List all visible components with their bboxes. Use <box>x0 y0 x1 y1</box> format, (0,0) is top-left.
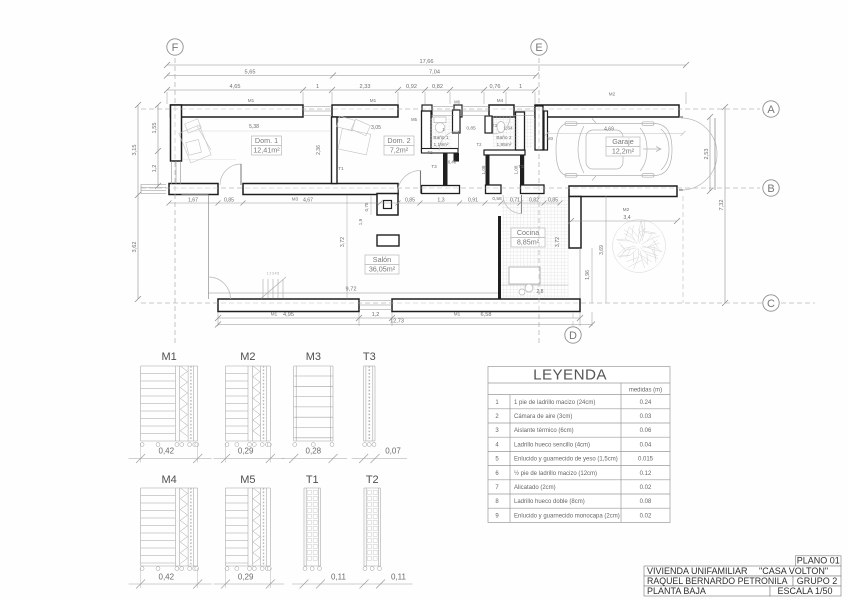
svg-text:36,05m²: 36,05m² <box>369 265 396 274</box>
svg-text:0,42: 0,42 <box>159 446 175 455</box>
svg-text:T3: T3 <box>363 351 376 363</box>
svg-text:T3: T3 <box>431 164 437 169</box>
svg-text:0.08: 0.08 <box>640 499 652 505</box>
svg-text:12,2m²: 12,2m² <box>612 147 635 156</box>
svg-text:3,72: 3,72 <box>340 237 346 247</box>
svg-text:M2: M2 <box>623 207 630 212</box>
svg-text:0.02: 0.02 <box>640 485 652 491</box>
svg-text:Enlucido y guarnecido monocapa: Enlucido y guarnecido monocapa (2cm) <box>514 513 620 519</box>
svg-text:0.06: 0.06 <box>640 428 652 434</box>
svg-text:7,32: 7,32 <box>719 200 725 211</box>
svg-text:M6: M6 <box>454 100 460 105</box>
svg-text:12,41m²: 12,41m² <box>253 146 280 155</box>
svg-text:M3: M3 <box>306 351 321 363</box>
svg-text:4,65: 4,65 <box>230 84 241 90</box>
svg-text:2,33: 2,33 <box>360 84 371 90</box>
svg-text:LEYENDA: LEYENDA <box>533 367 607 384</box>
svg-text:M4: M4 <box>497 98 504 103</box>
svg-text:M4: M4 <box>162 474 177 486</box>
svg-text:7,2m²: 7,2m² <box>390 146 409 155</box>
svg-text:8,85m²: 8,85m² <box>517 238 540 247</box>
svg-text:3,69: 3,69 <box>599 245 605 255</box>
svg-text:0,29: 0,29 <box>238 572 254 581</box>
svg-text:M3: M3 <box>292 197 299 202</box>
svg-text:T1: T1 <box>306 474 319 486</box>
svg-text:M5: M5 <box>240 474 255 486</box>
svg-text:Baño 1: Baño 1 <box>433 135 449 141</box>
svg-text:2,8: 2,8 <box>537 289 544 295</box>
svg-text:2,53: 2,53 <box>704 149 710 160</box>
svg-text:M5: M5 <box>411 117 417 122</box>
svg-text:0,28: 0,28 <box>306 446 322 455</box>
svg-text:2,36: 2,36 <box>316 145 322 155</box>
svg-text:Salón: Salón <box>373 255 391 264</box>
svg-text:C: C <box>767 298 775 310</box>
svg-text:1,95m²: 1,95m² <box>497 142 512 148</box>
svg-text:Baño 2: Baño 2 <box>496 135 512 141</box>
svg-text:3,62: 3,62 <box>132 242 138 253</box>
svg-text:0,85: 0,85 <box>224 198 234 204</box>
svg-text:T1: T1 <box>338 166 344 171</box>
svg-text:1,67: 1,67 <box>188 198 198 204</box>
svg-text:4,95: 4,95 <box>283 312 294 318</box>
svg-text:0,56: 0,56 <box>492 196 502 202</box>
svg-text:M3: M3 <box>547 136 553 141</box>
svg-text:0.24: 0.24 <box>640 400 652 406</box>
svg-text:0.015: 0.015 <box>638 457 654 463</box>
svg-text:0,82: 0,82 <box>432 84 443 90</box>
svg-text:1: 1 <box>442 127 445 132</box>
svg-text:0,11: 0,11 <box>391 572 407 581</box>
svg-text:0,76: 0,76 <box>490 84 501 90</box>
svg-text:1: 1 <box>316 84 319 90</box>
svg-text:1,2: 1,2 <box>372 312 380 318</box>
svg-text:Dom. 2: Dom. 2 <box>387 136 410 145</box>
svg-text:0,42: 0,42 <box>159 572 175 581</box>
svg-text:0,85: 0,85 <box>466 126 476 132</box>
svg-text:D: D <box>569 330 577 342</box>
svg-text:VIVIENDA UNIFAMILIAR: VIVIENDA UNIFAMILIAR <box>647 566 748 576</box>
svg-text:Aislante térmico (6cm): Aislante térmico (6cm) <box>514 428 574 434</box>
svg-text:0.02: 0.02 <box>640 513 652 519</box>
svg-text:6,58: 6,58 <box>481 312 492 318</box>
svg-text:3,05: 3,05 <box>371 125 381 131</box>
svg-text:1,08: 1,08 <box>481 165 486 174</box>
svg-text:5,38: 5,38 <box>249 124 259 130</box>
svg-text:0,85: 0,85 <box>548 198 558 204</box>
svg-text:M1: M1 <box>248 98 255 103</box>
svg-text:7,04: 7,04 <box>429 69 440 75</box>
svg-text:17,66: 17,66 <box>420 59 434 65</box>
svg-text:Garaje: Garaje <box>612 137 634 146</box>
svg-text:PLANTA BAJA: PLANTA BAJA <box>647 586 706 596</box>
svg-text:0,71: 0,71 <box>510 198 520 204</box>
svg-text:0,11: 0,11 <box>331 572 347 581</box>
svg-text:ESCALA 1/50: ESCALA 1/50 <box>777 586 832 596</box>
svg-text:0,85: 0,85 <box>405 198 415 204</box>
svg-text:3,72: 3,72 <box>555 237 561 247</box>
svg-text:0,07: 0,07 <box>385 446 401 455</box>
svg-text:1,19m²: 1,19m² <box>434 142 449 148</box>
svg-text:M2: M2 <box>240 351 255 363</box>
svg-text:0,78: 0,78 <box>364 202 369 211</box>
svg-text:"CASA VOLTON": "CASA VOLTON" <box>759 566 828 576</box>
svg-text:PLANO 01: PLANO 01 <box>797 556 840 566</box>
svg-text:Ladrillo hueco sencillo (4cm): Ladrillo hueco sencillo (4cm) <box>514 442 590 448</box>
svg-text:1 pie de ladrillo macizo (24cm: 1 pie de ladrillo macizo (24cm) <box>514 400 595 406</box>
svg-text:1 2 3 4 5: 1 2 3 4 5 <box>267 272 280 276</box>
svg-text:1,64: 1,64 <box>503 126 513 132</box>
svg-text:4,69: 4,69 <box>604 127 614 133</box>
svg-text:Dom. 1: Dom. 1 <box>255 136 278 145</box>
svg-text:0,82: 0,82 <box>529 198 539 204</box>
svg-text:1,3: 1,3 <box>437 198 444 204</box>
svg-text:1,55: 1,55 <box>152 123 158 134</box>
svg-text:0,48: 0,48 <box>448 160 457 165</box>
svg-text:3,4: 3,4 <box>623 215 630 221</box>
svg-text:0.03: 0.03 <box>640 414 652 420</box>
svg-text:T3: T3 <box>518 164 524 169</box>
svg-text:0,29: 0,29 <box>238 446 254 455</box>
svg-text:1,2: 1,2 <box>152 165 158 173</box>
svg-text:1,9: 1,9 <box>358 218 363 225</box>
svg-text:T2: T2 <box>477 142 483 147</box>
svg-text:0,92: 0,92 <box>406 84 417 90</box>
svg-text:T2: T2 <box>366 474 379 486</box>
svg-text:M1: M1 <box>162 351 177 363</box>
svg-text:½ pie de ladrillo macizo (12cm: ½ pie de ladrillo macizo (12cm) <box>514 470 597 477</box>
svg-text:0,91: 0,91 <box>468 198 478 204</box>
svg-text:Cocina: Cocina <box>517 228 539 237</box>
svg-text:M1: M1 <box>370 98 377 103</box>
svg-text:A: A <box>767 104 775 116</box>
svg-text:Cámara de aire (3cm): Cámara de aire (3cm) <box>514 414 572 420</box>
svg-text:1,96: 1,96 <box>585 270 591 280</box>
svg-text:T2: T2 <box>428 150 434 155</box>
svg-text:M2: M2 <box>609 92 616 97</box>
svg-text:0.12: 0.12 <box>640 471 652 477</box>
svg-text:RAQUEL BERNARDO PETRONILA: RAQUEL BERNARDO PETRONILA <box>647 576 788 586</box>
svg-text:0.04: 0.04 <box>640 442 652 448</box>
svg-text:3,15: 3,15 <box>132 145 138 156</box>
svg-text:4,67: 4,67 <box>303 198 313 204</box>
svg-text:Enlucido y guarnecido de yeso: Enlucido y guarnecido de yeso (1,5cm) <box>514 457 618 463</box>
svg-text:5,65: 5,65 <box>245 69 256 75</box>
svg-text:Alicatado (2cm): Alicatado (2cm) <box>514 485 556 491</box>
svg-text:1: 1 <box>519 84 522 90</box>
svg-text:GRUPO 2: GRUPO 2 <box>797 576 838 586</box>
svg-text:B: B <box>767 183 774 195</box>
svg-text:E: E <box>535 42 542 54</box>
svg-text:T3: T3 <box>492 123 498 128</box>
svg-text:medidas (m): medidas (m) <box>629 388 662 394</box>
svg-text:Ladrillo hueco doble (8cm): Ladrillo hueco doble (8cm) <box>514 499 585 505</box>
svg-text:F: F <box>172 42 179 54</box>
